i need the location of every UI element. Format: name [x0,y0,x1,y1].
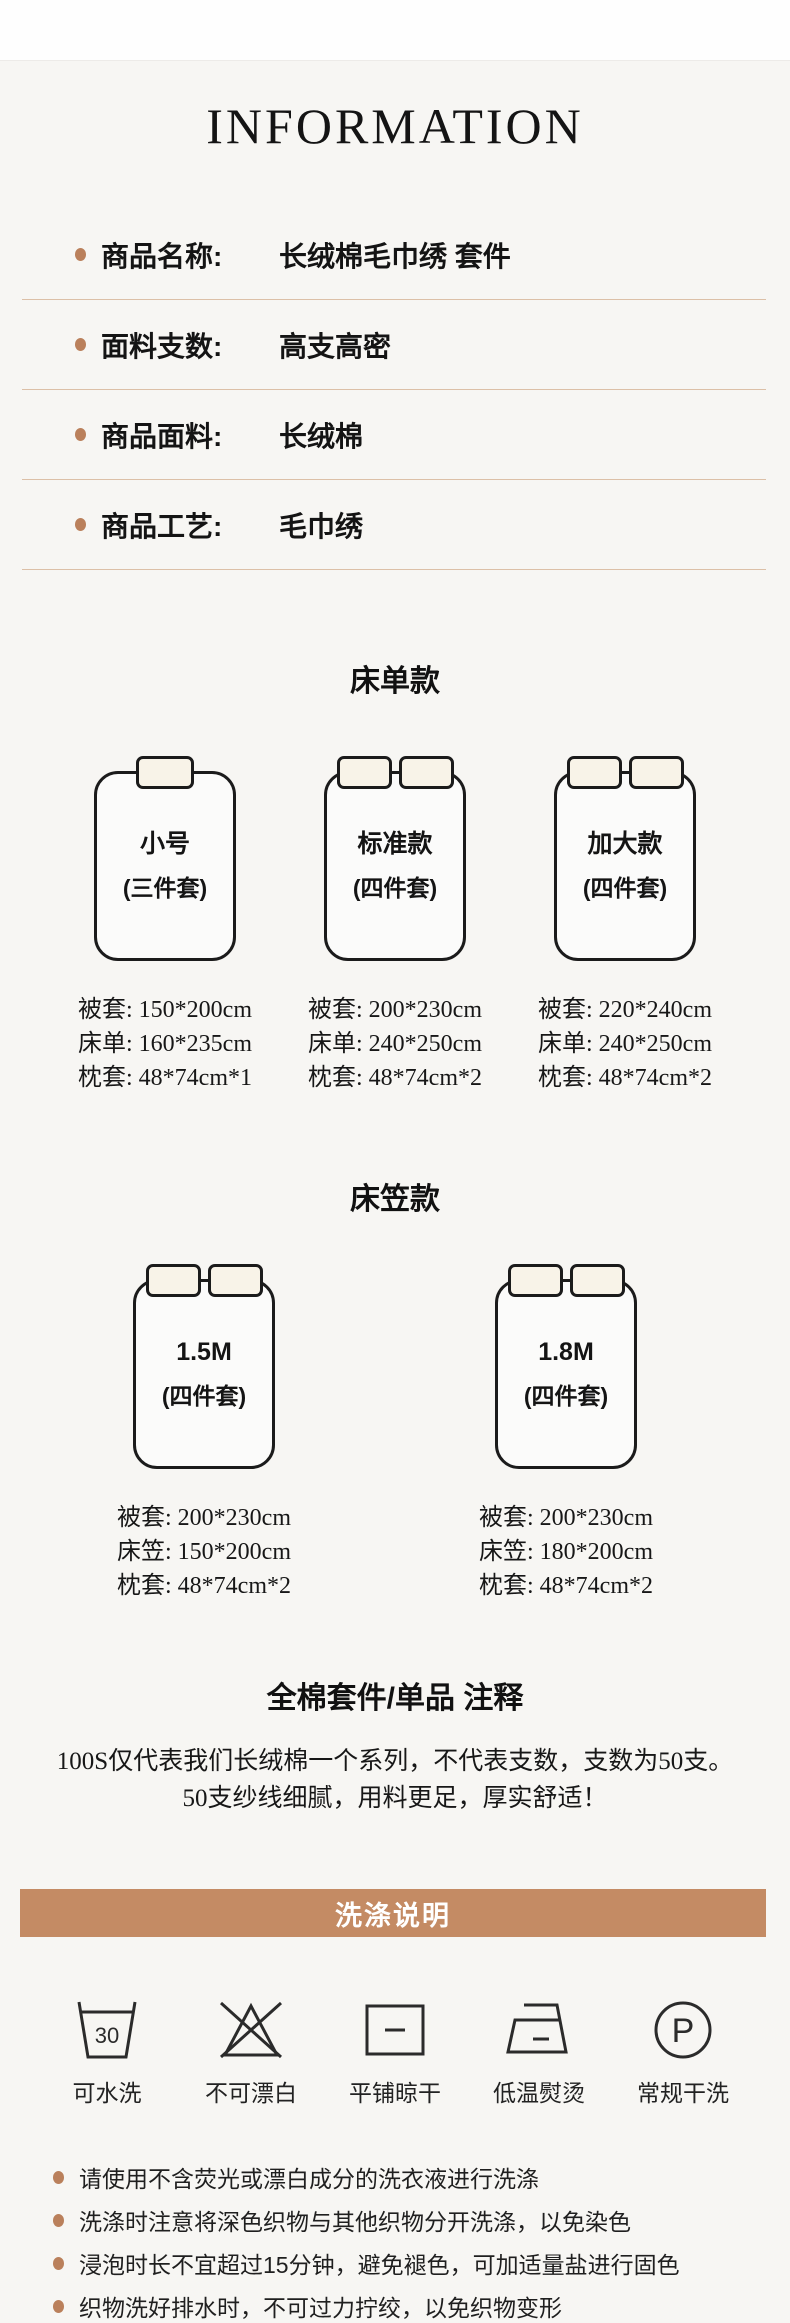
bullet-dot-icon [53,2214,64,2227]
spec-line: 床单: 240*250cm [308,1027,482,1061]
pillow-icon [208,1264,263,1297]
tip-item: 洗涤时注意将深色织物与其他织物分开洗涤，以免染色 [0,2206,768,2234]
bed-diagram-1-8m: 1.8M (四件套) [495,1264,637,1469]
spec-line: 被套: 200*230cm [117,1501,291,1535]
care-icon-label: 可水洗 [73,2074,142,2108]
info-label: 商品名称: [101,235,261,275]
bullet-dot-icon [75,248,86,261]
spec-column: 被套: 200*230cm 床单: 240*250cm 枕套: 48*74cm*… [280,993,510,1095]
info-label: 面料支数: [101,325,261,365]
bullet-dot-icon [53,2171,64,2184]
spec-column: 被套: 220*240cm 床单: 240*250cm 枕套: 48*74cm*… [510,993,740,1095]
svg-text:P: P [672,2012,695,2050]
bed-size-label: 1.5M [176,1340,232,1365]
bed-diagram-standard: 标准款 (四件套) [324,756,466,961]
spec-line: 被套: 220*240cm [538,993,712,1027]
bed-size-label: 加大款 [587,832,662,857]
spec-line: 床单: 160*235cm [78,1027,252,1061]
spec-column: 被套: 200*230cm 床笠: 150*200cm 枕套: 48*74cm*… [84,1501,324,1603]
pillow-icon [399,756,454,789]
info-value: 高支高密 [279,325,391,365]
pillow-icon [570,1264,625,1297]
spec-line: 枕套: 48*74cm*2 [538,1061,712,1095]
bullet-dot-icon [75,518,86,531]
flat-dry-icon [357,1999,433,2061]
spec-line: 枕套: 48*74cm*2 [308,1061,482,1095]
spec-line: 床笠: 180*200cm [479,1535,653,1569]
bed-body: 1.8M (四件套) [495,1279,637,1469]
bed-body: 加大款 (四件套) [554,771,696,961]
pillow-icon [629,756,684,789]
specs-row-flat-sheet: 被套: 150*200cm 床单: 160*235cm 枕套: 48*74cm*… [0,993,790,1095]
section-title-flat-sheet: 床单款 [0,656,790,700]
tip-item: 织物洗好排水时，不可过力拧绞，以免织物变形 [0,2292,768,2320]
bed-body: 小号 (三件套) [94,771,236,961]
spec-column: 被套: 150*200cm 床单: 160*235cm 枕套: 48*74cm*… [50,993,280,1095]
spec-column: 被套: 200*230cm 床笠: 180*200cm 枕套: 48*74cm*… [446,1501,686,1603]
bed-body: 标准款 (四件套) [324,771,466,961]
tip-text: 织物洗好排水时，不可过力拧绞，以免织物变形 [79,2289,562,2323]
product-info-table: 商品名称: 长绒棉毛巾绣 套件 面料支数: 高支高密 商品面料: 长绒棉 商品工… [22,210,766,570]
page-title: INFORMATION [0,97,790,155]
info-row-craft: 商品工艺: 毛巾绣 [22,480,766,570]
info-value: 长绒棉毛巾绣 套件 [279,235,511,275]
washing-instructions-banner: 洗涤说明 [20,1889,766,1937]
bed-pieces-label: (四件套) [583,877,667,900]
info-value: 长绒棉 [279,415,363,455]
top-white-strip [0,0,790,61]
no-bleach-icon [213,1999,289,2061]
bed-pieces-label: (四件套) [162,1385,246,1408]
bed-pieces-label: (四件套) [353,877,437,900]
bullet-dot-icon [53,2257,64,2270]
svg-text:30: 30 [95,2023,119,2048]
spec-line: 枕套: 48*74cm*1 [78,1061,252,1095]
pillow-icon [567,756,622,789]
spec-line: 枕套: 48*74cm*2 [117,1569,291,1603]
bed-size-label: 标准款 [357,832,432,857]
section-title-fitted-sheet: 床笠款 [0,1174,790,1218]
bullet-dot-icon [75,338,86,351]
pillow-icon [146,1264,201,1297]
tip-text: 浸泡时长不宜超过15分钟，避免褪色，可加适量盐进行固色 [79,2246,680,2280]
bullet-dot-icon [75,428,86,441]
iron-low-icon [501,1999,577,2061]
bed-size-label: 1.8M [538,1340,594,1365]
note-title: 全棉套件/单品 注释 [0,1673,790,1717]
note-line: 100S仅代表我们长绒棉一个系列，不代表支数，支数为50支。 [0,1743,790,1780]
bed-diagram-1-5m: 1.5M (四件套) [133,1264,275,1469]
info-label: 商品面料: [101,415,261,455]
beds-row-fitted-sheet: 1.5M (四件套) 1.8M (四件套) [0,1264,770,1469]
tip-item: 请使用不含荧光或漂白成分的洗衣液进行洗涤 [0,2163,768,2191]
info-value: 毛巾绣 [279,505,363,545]
spec-line: 被套: 200*230cm [479,1501,653,1535]
dry-clean-p-icon: P [645,1999,721,2061]
banner-title: 洗涤说明 [335,1894,451,1933]
care-icon-label: 不可漂白 [205,2074,297,2108]
info-row-thread-count: 面料支数: 高支高密 [22,300,766,390]
note-body: 100S仅代表我们长绒棉一个系列，不代表支数，支数为50支。 50支纱线细腻，用… [0,1743,790,1817]
care-icon-label: 平铺晾干 [349,2074,441,2108]
tip-item: 浸泡时长不宜超过15分钟，避免褪色，可加适量盐进行固色 [0,2249,768,2277]
info-label: 商品工艺: [101,505,261,545]
note-line: 50支纱线细腻，用料更足，厚实舒适！ [0,1780,790,1817]
bed-pieces-label: (四件套) [524,1385,608,1408]
info-row-product-name: 商品名称: 长绒棉毛巾绣 套件 [22,210,766,300]
tip-text: 请使用不含荧光或漂白成分的洗衣液进行洗涤 [79,2160,539,2194]
spec-line: 枕套: 48*74cm*2 [479,1569,653,1603]
spec-line: 床单: 240*250cm [538,1027,712,1061]
pillow-icon [337,756,392,789]
beds-row-flat-sheet: 小号 (三件套) 标准款 (四件套) 加大款 (四件套) [0,756,790,961]
bullet-dot-icon [53,2300,64,2313]
spec-line: 床笠: 150*200cm [117,1535,291,1569]
spec-line: 被套: 150*200cm [78,993,252,1027]
tip-text: 洗涤时注意将深色织物与其他织物分开洗涤，以免染色 [79,2203,631,2237]
bed-body: 1.5M (四件套) [133,1279,275,1469]
pillow-icon [136,756,194,789]
info-row-fabric: 商品面料: 长绒棉 [22,390,766,480]
pillow-icon [508,1264,563,1297]
bed-diagram-small: 小号 (三件套) [94,756,236,961]
bed-pieces-label: (三件套) [123,877,207,900]
spec-line: 被套: 200*230cm [308,993,482,1027]
wash-30-icon: 30 [69,1999,145,2061]
care-tips-list: 请使用不含荧光或漂白成分的洗衣液进行洗涤 洗涤时注意将深色织物与其他织物分开洗涤… [0,2163,790,2320]
specs-row-fitted-sheet: 被套: 200*230cm 床笠: 150*200cm 枕套: 48*74cm*… [0,1501,770,1603]
bed-diagram-large: 加大款 (四件套) [554,756,696,961]
care-icon-label: 常规干洗 [637,2074,729,2108]
bed-size-label: 小号 [140,832,190,857]
care-icons-row: 30 可水洗 不可漂白 平铺晾干 低温熨烫 P 常规干洗 [0,1999,790,2108]
care-icon-label: 低温熨烫 [493,2074,585,2108]
